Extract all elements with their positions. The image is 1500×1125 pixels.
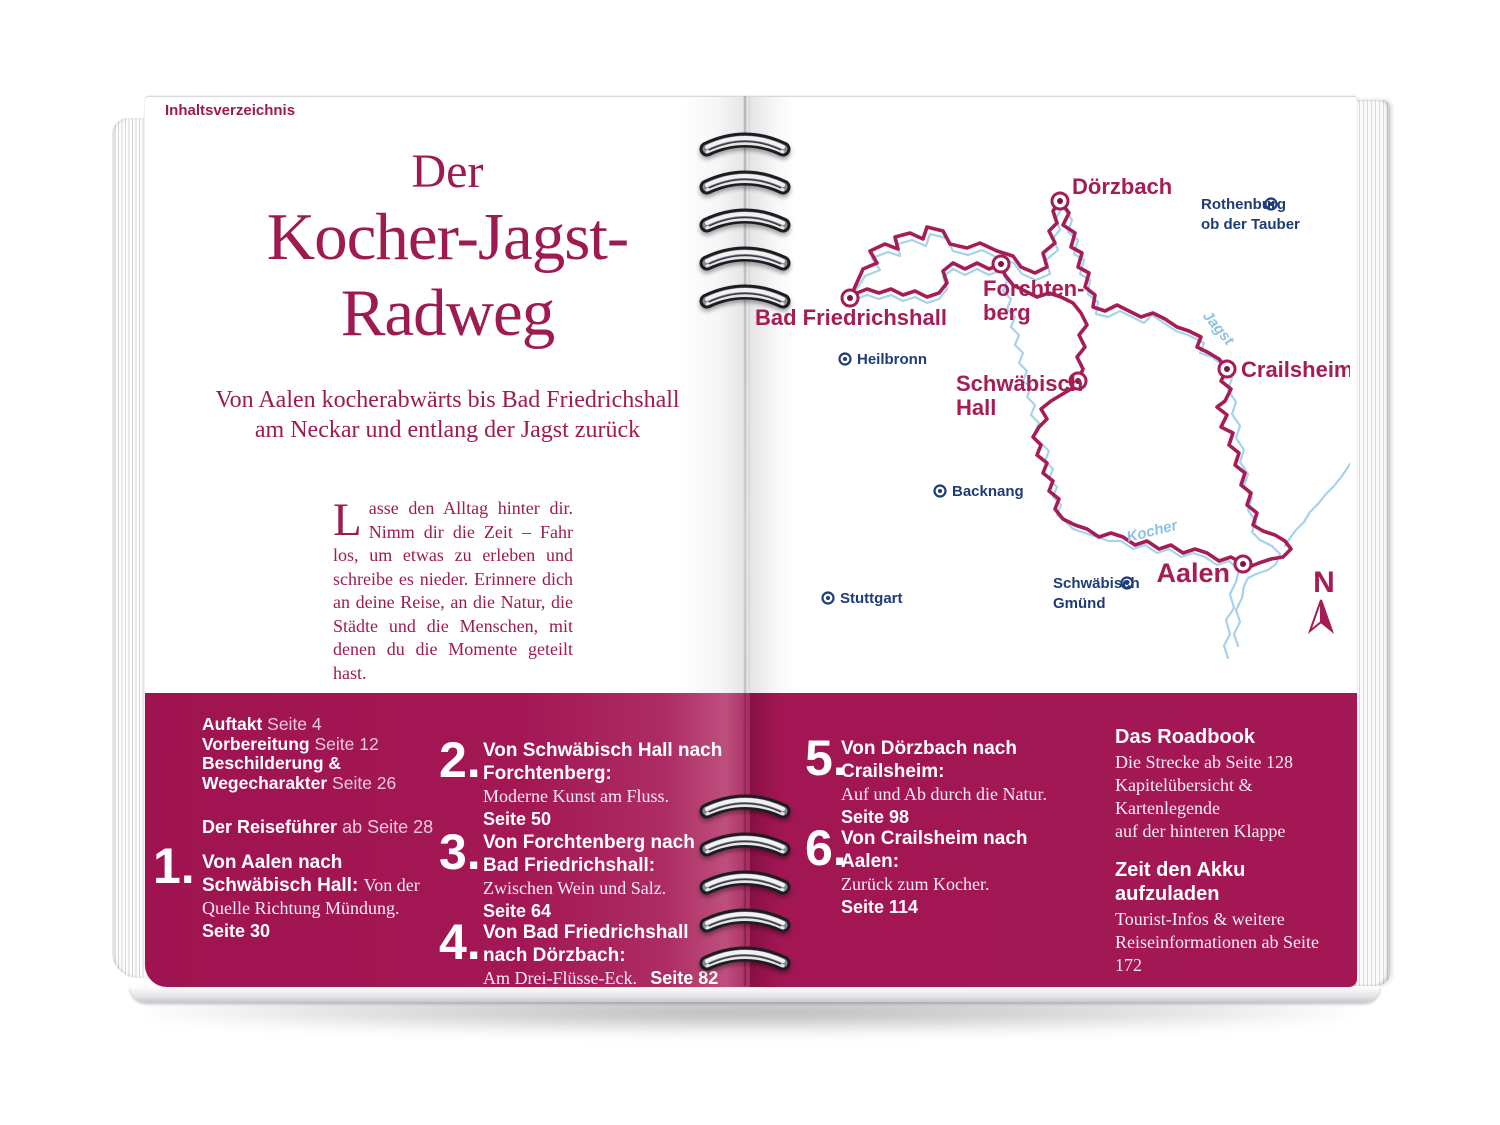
spiral-binding-coil <box>697 864 793 896</box>
intro-dropcap: L <box>333 497 369 541</box>
compass-needle-icon <box>1310 600 1332 631</box>
chapter-subtitle: Von Aalen kocherabwärts bis Bad Friedric… <box>145 385 750 445</box>
marker-forchtenberg <box>993 256 1009 272</box>
marker-heilbronn <box>840 354 851 365</box>
toc-band-right: 5. Von Dörzbach nach Crailsheim: Auf und… <box>750 693 1357 987</box>
label-backnang: Backnang <box>952 483 1024 500</box>
subtitle-line-1: Von Aalen kocherabwärts bis Bad Friedric… <box>145 385 750 415</box>
left-page: Inhaltsverzeichnis Der Kocher-Jagst- Rad… <box>145 96 750 987</box>
label-schwaebisch-hall-2: Hall <box>956 395 996 420</box>
compass-n-label: N <box>1313 566 1335 599</box>
spiral-binding-coil <box>697 126 793 158</box>
marker-aalen <box>1235 556 1251 572</box>
toc-general-item: Beschilderung & <box>202 754 396 774</box>
stage-title: Von Dörzbach nach Crailsheim: <box>841 737 1047 783</box>
spiral-binding-coil <box>697 240 793 272</box>
spiral-binding-coil <box>697 278 793 310</box>
toc-general-item: Auftakt Seite 4 <box>202 715 396 735</box>
stage-entry-5: Von Dörzbach nach Crailsheim: Auf und Ab… <box>841 737 1047 829</box>
label-forchtenberg-2: berg <box>983 300 1031 325</box>
compass: N <box>1310 566 1335 631</box>
stage-desc: Auf und Ab durch die Natur. <box>841 783 1047 806</box>
toc-band-left: Auftakt Seite 4 Vorbereitung Seite 12 Be… <box>145 693 750 987</box>
marker-doerzbach <box>1052 193 1068 209</box>
title-line-2: Kocher-Jagst- <box>145 199 750 275</box>
toc-general-list: Auftakt Seite 4 Vorbereitung Seite 12 Be… <box>202 715 396 793</box>
chapter-title: Der Kocher-Jagst- Radweg <box>145 145 750 351</box>
stage-title: Von Crailsheim nach Aalen: <box>841 827 1047 873</box>
spiral-binding-coil <box>697 902 793 934</box>
stage-entry-6: Von Crailsheim nach Aalen: Zurück zum Ko… <box>841 827 1047 919</box>
toc-guide-item: Der Reiseführer ab Seite 28 <box>202 817 433 838</box>
marker-bad-friedrichshall <box>842 290 858 306</box>
title-line-3: Radweg <box>145 275 750 351</box>
marker-stuttgart <box>823 593 834 604</box>
stage-number: 3. <box>439 827 481 877</box>
label-crailsheim: Crailsheim <box>1241 357 1350 382</box>
extra-roadbook: Das Roadbook Die Strecke ab Seite 128 Ka… <box>1115 725 1347 843</box>
title-line-1: Der <box>145 145 750 199</box>
stage-desc: Zurück zum Kocher. <box>841 873 1047 896</box>
stage-title: Von Schwäbisch Hall nach Forchtenberg: <box>483 739 735 785</box>
book-spread: Inhaltsverzeichnis Der Kocher-Jagst- Rad… <box>0 0 1500 1125</box>
stage-page: Seite 30 <box>202 920 454 943</box>
toc-extras: Das Roadbook Die Strecke ab Seite 128 Ka… <box>1115 725 1347 987</box>
stage-entry-1: Von Aalen nach Schwäbisch Hall: Von der … <box>202 851 454 943</box>
toc-general-item: Vorbereitung Seite 12 <box>202 735 396 755</box>
label-rothenburg-2: ob der Tauber <box>1201 216 1300 233</box>
spiral-binding-coil <box>697 940 793 972</box>
label-doerzbach: Dörzbach <box>1072 174 1172 199</box>
stage-number: 1. <box>153 841 195 891</box>
subtitle-line-2: am Neckar und entlang der Jagst zurück <box>145 415 750 445</box>
stage-page: Seite 98 <box>841 806 1047 829</box>
intro-text: asse den Alltag hinter dir. Nimm dir die… <box>333 498 573 683</box>
marker-backnang <box>935 486 946 497</box>
stage-number: 4. <box>439 917 481 967</box>
label-schwaebisch-gmuend-2: Gmünd <box>1053 595 1106 612</box>
right-page-stack-edge <box>1352 100 1390 986</box>
spiral-binding-coil <box>697 202 793 234</box>
intro-paragraph: Lasse den Alltag hinter dir. Nimm dir di… <box>333 497 573 685</box>
label-rothenburg-1: Rothenburg <box>1201 196 1286 213</box>
stage-desc: Am Drei-Flüsse-Eck. <box>483 968 637 987</box>
toc-general-item: Wegecharakter Seite 26 <box>202 774 396 794</box>
stage-page: Seite 114 <box>841 896 1047 919</box>
label-forchtenberg-1: Forchten- <box>983 276 1084 301</box>
marker-crailsheim <box>1219 361 1235 377</box>
right-page: Bad Friedrichshall Dörzbach Forchten- be… <box>750 96 1357 987</box>
route-overview-map: Bad Friedrichshall Dörzbach Forchten- be… <box>750 126 1350 686</box>
label-stuttgart: Stuttgart <box>840 590 903 607</box>
label-schwaebisch-gmuend-1: Schwäbisch <box>1053 575 1140 592</box>
extra-akku: Zeit den Akku aufzuladen Tourist-Infos &… <box>1115 858 1347 977</box>
spiral-binding-coil <box>697 164 793 196</box>
label-aalen: Aalen <box>1156 558 1230 588</box>
bottom-page-edge <box>130 986 1380 1002</box>
spiral-binding-coil <box>697 826 793 858</box>
label-schwaebisch-hall-1: Schwäbisch <box>956 371 1083 396</box>
page-header-label: Inhaltsverzeichnis <box>165 102 295 119</box>
spiral-book: Inhaltsverzeichnis Der Kocher-Jagst- Rad… <box>105 88 1392 1013</box>
spiral-binding-coil <box>697 788 793 820</box>
stage-title: Von Aalen nach Schwäbisch Hall: <box>202 852 358 896</box>
stage-number: 2. <box>439 735 481 785</box>
label-heilbronn: Heilbronn <box>857 351 927 368</box>
left-page-stack-edge <box>112 118 146 978</box>
label-river-kocher: Kocher <box>1125 517 1180 546</box>
river-branch-ne <box>1285 464 1350 546</box>
